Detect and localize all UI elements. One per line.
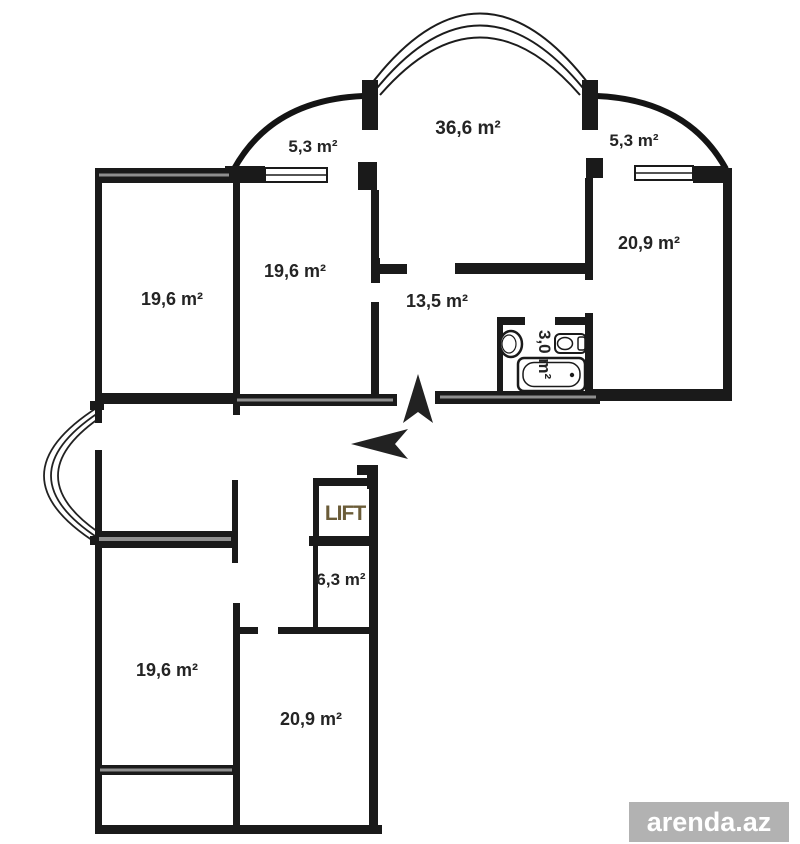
lift-shaft-wall-bottom bbox=[309, 536, 378, 546]
label-room-lower-left: 19,6 m² bbox=[136, 660, 198, 680]
west-bay-arcs bbox=[44, 407, 98, 544]
watermark: arenda.az bbox=[629, 802, 789, 842]
washbasin bbox=[500, 331, 522, 357]
label-hall: 13,5 m² bbox=[406, 291, 468, 311]
window-top-left bbox=[265, 168, 327, 182]
label-bathroom: 3,0 m² bbox=[535, 330, 554, 379]
lift-shaft-wall-left bbox=[313, 478, 319, 544]
label-balcony-top-right: 5,3 m² bbox=[609, 131, 658, 150]
entrance-arrows bbox=[351, 374, 433, 459]
window-top-right bbox=[635, 166, 693, 180]
floor-plan: 5,3 m² 36,6 m² 5,3 m² 20,9 m² 19,6 m² 19… bbox=[0, 0, 800, 844]
arch-pillar-right bbox=[582, 80, 598, 130]
walls bbox=[90, 80, 732, 834]
direction-arrow-left-icon bbox=[351, 429, 408, 459]
label-living-room: 36,6 m² bbox=[435, 118, 500, 139]
toilet bbox=[555, 334, 586, 353]
label-room-upper-middle: 19,6 m² bbox=[264, 261, 326, 281]
label-balcony-top-left: 5,3 m² bbox=[288, 137, 337, 156]
top-balcony-arch bbox=[366, 14, 594, 96]
watermark-text: arenda.az bbox=[647, 807, 772, 837]
arch-pillar-left bbox=[362, 80, 378, 130]
room-labels: 5,3 m² 36,6 m² 5,3 m² 20,9 m² 19,6 m² 19… bbox=[136, 118, 680, 729]
entrance-arrow-up-icon bbox=[403, 374, 433, 423]
label-room-lower-right: 20,9 m² bbox=[280, 709, 342, 729]
windows bbox=[265, 166, 693, 182]
label-lift: LIFT bbox=[325, 502, 366, 525]
lift-shaft-wall-top bbox=[313, 478, 371, 486]
label-room-top-right: 20,9 m² bbox=[618, 233, 680, 253]
label-storage: 6,3 m² bbox=[316, 570, 365, 589]
label-room-upper-left: 19,6 m² bbox=[141, 289, 203, 309]
